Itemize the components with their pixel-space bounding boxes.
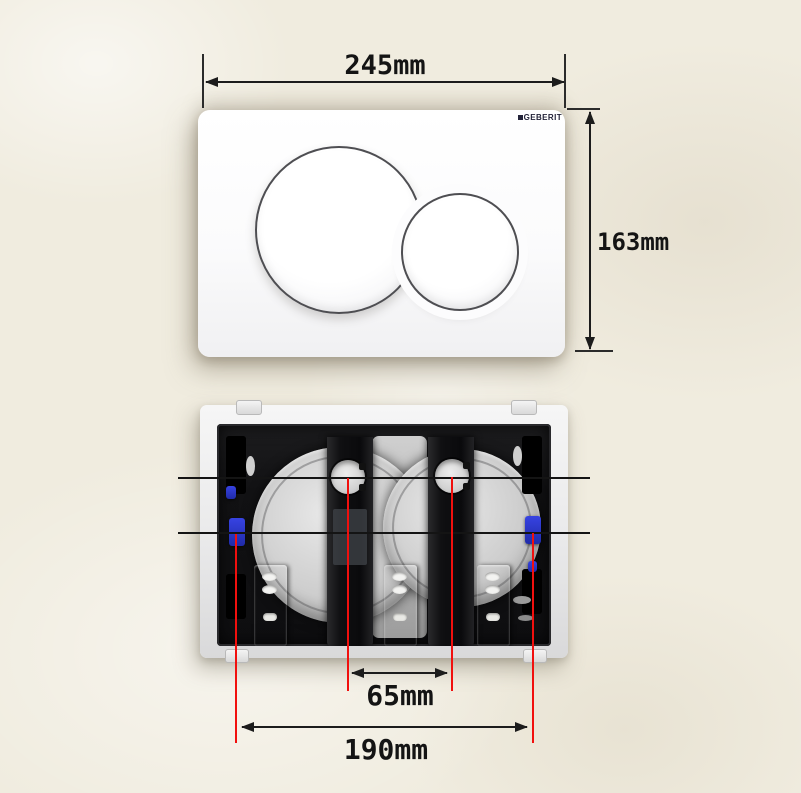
clip-slot [486,613,500,621]
clip-hole [262,585,277,594]
clip-hole [262,572,277,581]
flush-button-large [255,146,423,314]
mounting-tab-top-left [236,400,262,415]
clip-hole [485,572,500,581]
hole-notch [359,484,366,491]
clip-hole [392,585,407,594]
height-extension-line-bottom [575,350,613,352]
blue-dot-left [226,486,236,499]
hole-notch [359,463,366,470]
red-reference-line-inner-left [347,478,349,691]
hole-spacing-dimension-arrow [352,672,447,674]
clip-hole [392,572,407,581]
hole-notch [463,462,470,469]
width-dimension-arrow [206,81,564,83]
geberit-logo-text: GEBERIT [524,113,562,122]
clip-slot [263,613,277,621]
frame-cutout-right-1 [513,596,531,604]
back-frame [217,424,551,646]
hole-notch [463,483,470,490]
mount-spacing-dimension-arrow [242,726,527,728]
frame-slot-top-right [522,436,542,494]
spring-clip-right [477,565,510,646]
support-bar-left-patch [333,509,367,565]
spring-clip-center [384,565,417,646]
frame-cutout-right-2 [518,615,533,621]
geberit-logo: GEBERIT [500,112,562,124]
horizontal-guide-line-top [178,477,590,479]
height-extension-line-top [567,108,600,110]
hole-spacing-dimension-label: 65mm [347,679,453,712]
spring-clip-left [254,565,287,646]
mount-spacing-dimension-label: 190mm [320,733,452,766]
product-dimension-photo: 245mm GEBERIT 163mm [0,0,801,793]
horizontal-guide-line-bottom [178,532,590,534]
geberit-logo-square-icon [518,115,523,120]
red-reference-line-outer-left [235,534,237,743]
frame-oval-left [246,456,255,476]
height-dimension-arrow [589,112,591,349]
red-reference-line-inner-right [451,477,453,691]
red-reference-line-outer-right [532,533,534,743]
clip-slot [393,613,407,621]
width-extension-line-left [202,54,204,108]
mounting-tab-bottom-left [225,649,249,663]
mounting-tab-top-right [511,400,537,415]
mounting-tab-bottom-right [523,649,547,663]
clip-hole [485,585,500,594]
width-dimension-label: 245mm [320,50,450,81]
frame-oval-right [513,446,522,466]
flush-button-small [401,193,519,311]
height-dimension-label: 163mm [597,228,669,256]
